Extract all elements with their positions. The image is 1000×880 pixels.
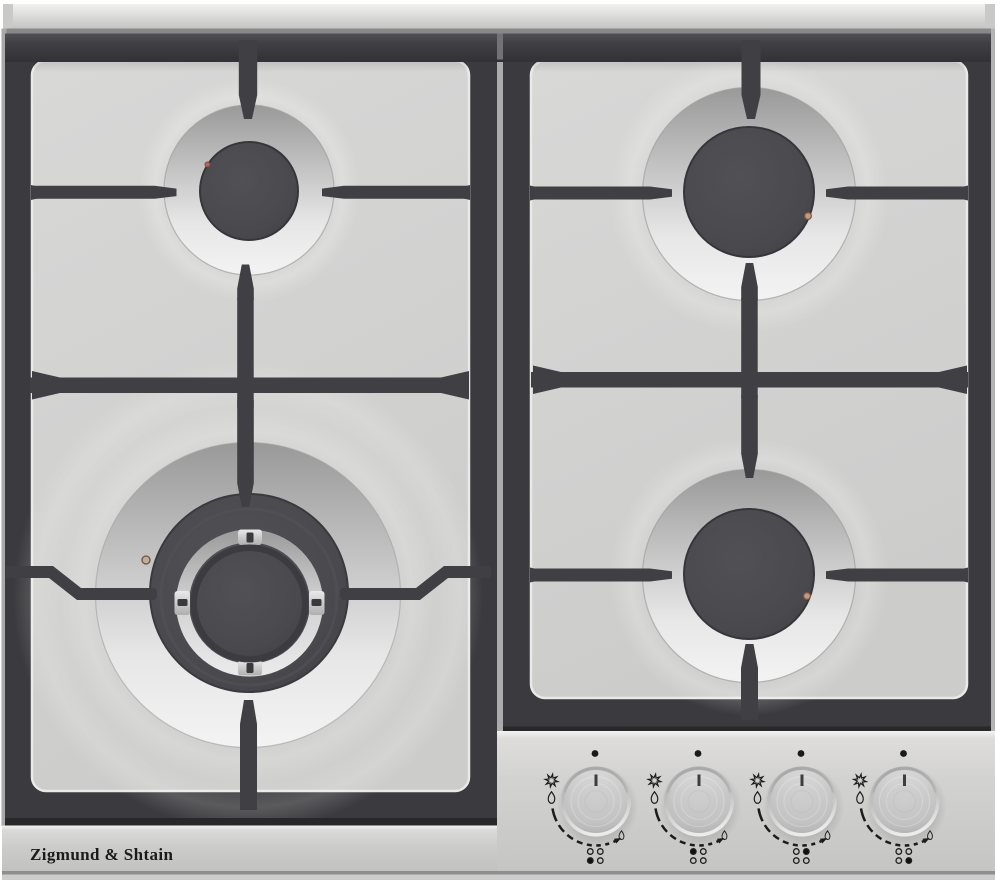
svg-text:Zigmund & Shtain: Zigmund & Shtain — [30, 845, 174, 864]
